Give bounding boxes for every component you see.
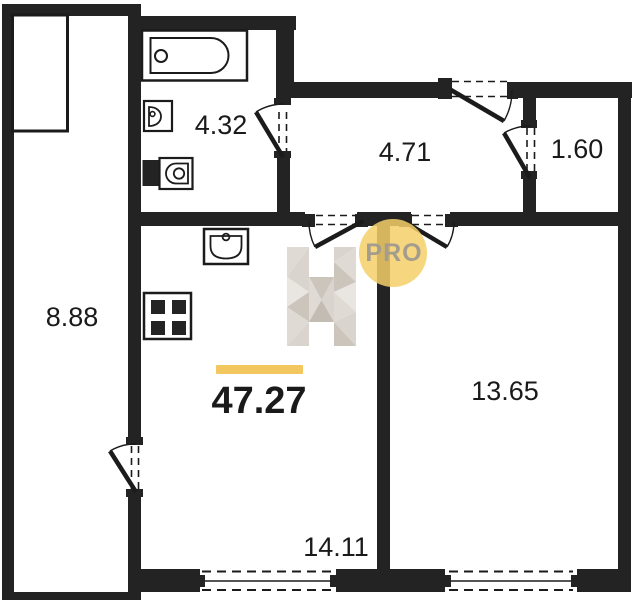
wall-storage-divider-lower <box>523 179 536 213</box>
hallway-area-label: 4.71 <box>379 137 432 167</box>
bathroom-area-label: 4.32 <box>195 110 248 140</box>
wall-bathroom-right-lower <box>277 157 290 213</box>
wall-hallway-top <box>294 82 440 98</box>
storage-area-label: 1.60 <box>551 134 604 164</box>
living-room-window <box>196 572 339 591</box>
wall-bathroom-hallway-corner <box>276 16 294 98</box>
wall-bathroom-top <box>128 16 296 30</box>
wall-right-outer <box>618 82 631 592</box>
entrance-door <box>451 82 512 122</box>
bedroom-area-label: 13.65 <box>471 376 539 406</box>
bathroom-sink <box>144 101 172 131</box>
total-area-label: 47.27 <box>211 380 306 422</box>
wall-balcony-bottom <box>2 592 141 600</box>
balcony-door <box>110 444 139 492</box>
wall-storage-divider-upper <box>523 98 536 122</box>
wall-mid-band-left <box>128 212 305 226</box>
wall-bottom-a <box>128 569 200 592</box>
floor-plan-canvas: PRO 8.88 4.32 4.71 1.60 13.65 14.11 47.2… <box>0 0 635 600</box>
wall-bottom-b <box>336 569 445 592</box>
bedroom-window <box>442 572 580 591</box>
entrance-jamb-left <box>438 78 452 99</box>
wall-storage-top <box>517 82 632 98</box>
watermark-h <box>287 247 356 346</box>
wall-bottom-c <box>577 569 631 592</box>
bathroom-door <box>256 104 287 157</box>
storage-door <box>504 126 535 178</box>
balcony-partition <box>13 15 68 131</box>
pro-badge: PRO <box>359 219 427 287</box>
living-room-door <box>309 216 363 248</box>
kitchen-sink <box>204 229 248 264</box>
living-area-label: 14.11 <box>303 532 369 562</box>
balcony-area-label: 8.88 <box>46 302 99 332</box>
total-area-underline <box>216 365 303 374</box>
floor-plan: PRO 8.88 4.32 4.71 1.60 13.65 14.11 47.2… <box>0 0 635 600</box>
stove <box>144 293 191 339</box>
bedroom-door-jamb-right <box>445 214 458 227</box>
wall-mid-band-right <box>450 212 631 226</box>
toilet <box>143 158 193 189</box>
pro-badge-label: PRO <box>365 239 422 267</box>
bathtub <box>142 31 247 81</box>
